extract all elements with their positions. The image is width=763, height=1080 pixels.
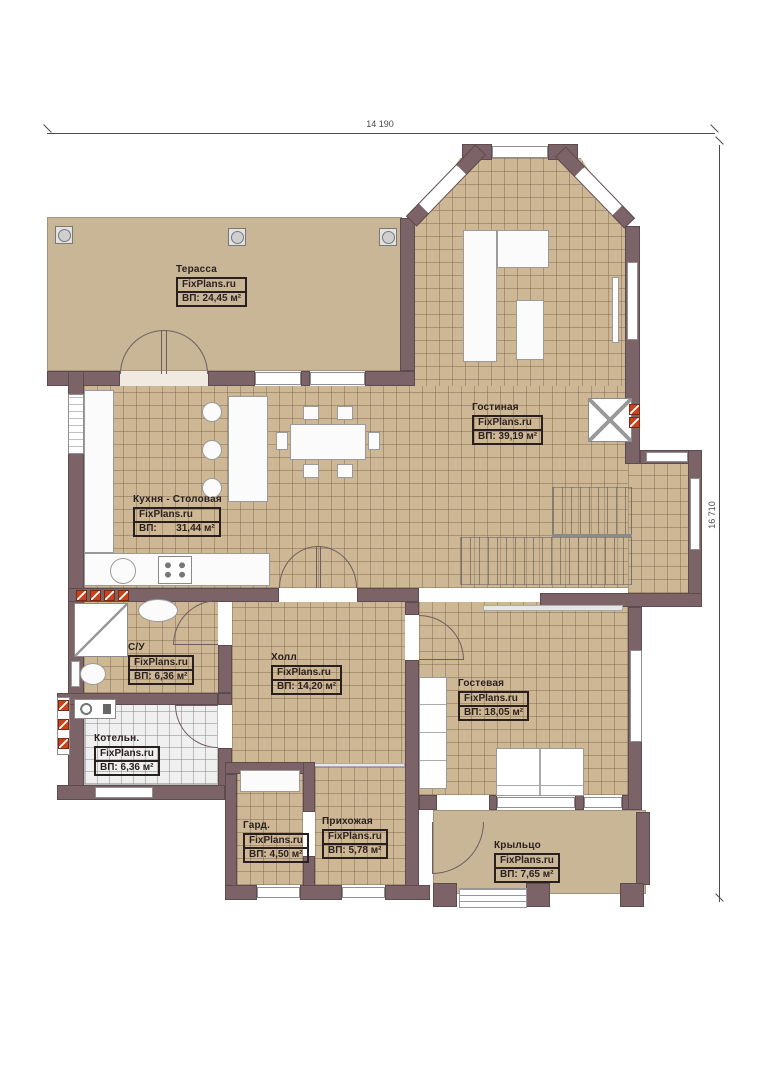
tv-console — [612, 277, 619, 343]
guest-bottom-wall-1 — [419, 795, 437, 810]
room-label-hall: Холл FixPlans.ru ВП: 14,20 м² — [271, 652, 342, 695]
sofa-back — [463, 230, 497, 362]
bay-top-window — [492, 146, 548, 158]
terrace-window-2 — [310, 372, 365, 385]
mid-wall-right — [357, 588, 419, 602]
room-label-wardrobe: Гард. FixPlans.ru ВП: 4,50 м² — [243, 820, 309, 863]
stairs-upper-flight — [552, 487, 632, 535]
boiler-door-leaf — [175, 705, 218, 706]
guest-bed — [496, 748, 584, 796]
kitchen-counter-left — [84, 390, 114, 553]
room-name-guest: Гостевая — [458, 678, 529, 690]
guest-top-beam — [483, 605, 623, 611]
radiator-marker-8 — [629, 404, 640, 415]
dim-right-line — [719, 145, 720, 902]
toilet-tank — [71, 661, 80, 687]
dining-table — [290, 424, 366, 460]
guest-bottom-window-1 — [497, 797, 575, 808]
brand-text: FixPlans.ru — [245, 835, 307, 849]
kitchen-sink — [110, 558, 136, 584]
chair-1 — [303, 406, 319, 420]
stepout-top-window — [646, 452, 688, 462]
stairs-lower-flight — [460, 537, 632, 585]
room-area-kitchen: ВП: 31,44 м² — [135, 523, 219, 535]
hall-guest-wall-b — [405, 660, 419, 895]
radiator-marker-9 — [629, 417, 640, 428]
wardrobe-left-wall — [225, 774, 237, 895]
room-box-kitchen: FixPlans.ru ВП: 31,44 м² — [133, 507, 221, 537]
terrace-column-3 — [379, 228, 397, 246]
dim-top-line — [47, 133, 715, 134]
bathroom-sink — [138, 599, 178, 622]
room-name-wardrobe: Гард. — [243, 820, 309, 832]
brand-text: FixPlans.ru — [496, 855, 558, 869]
brand-text: FixPlans.ru — [460, 693, 527, 707]
terrace-wall-pier — [301, 371, 310, 386]
hall-guest-wall-a — [405, 602, 419, 615]
guest-door-leaf — [419, 659, 464, 660]
boiler-bottom-window — [95, 787, 153, 798]
radiator-marker-4 — [118, 590, 129, 601]
room-area-hall: ВП: 14,20 м² — [273, 681, 340, 693]
radiator-marker-7 — [58, 738, 69, 749]
room-area-living: ВП: 39,19 м² — [474, 431, 541, 443]
dim-top-tick-left — [43, 124, 51, 132]
room-name-boiler: Котельн. — [94, 733, 160, 745]
brand-text: FixPlans.ru — [273, 667, 340, 681]
room-area-wardrobe: ВП: 4,50 м² — [245, 849, 307, 861]
bath-hall-wall-b — [218, 693, 232, 705]
guest-bottom-window-2 — [584, 797, 622, 808]
guest-wardrobe — [419, 677, 447, 789]
toilet-bowl — [80, 663, 106, 685]
brand-text: FixPlans.ru — [135, 509, 219, 523]
room-area-boiler: ВП: 6,36 м² — [96, 762, 158, 774]
floor-plan: 14 190 16 710 Терасса FixPlans.ru ВП: 24… — [0, 0, 763, 1080]
room-name-entry: Прихожая — [322, 816, 388, 828]
terrace-window-1 — [255, 372, 301, 385]
room-box-porch: FixPlans.ru ВП: 7,65 м² — [494, 853, 560, 883]
room-area-guest: ВП: 18,05 м² — [460, 707, 527, 719]
room-name-porch: Крыльцо — [494, 840, 560, 852]
porch-pillar-3 — [620, 883, 644, 907]
porch-pillar-1 — [433, 883, 457, 907]
bottom-wall-1 — [225, 885, 257, 900]
bottom-window-2 — [342, 887, 385, 898]
room-label-porch: Крыльцо FixPlans.ru ВП: 7,65 м² — [494, 840, 560, 883]
porch-pillar-2 — [526, 883, 550, 907]
stair-extension-floor — [628, 462, 690, 593]
living-right-window — [627, 262, 638, 340]
room-box-wardrobe: FixPlans.ru ВП: 4,50 м² — [243, 833, 309, 863]
stepout-right-window — [690, 478, 700, 550]
guest-bottom-wall-3 — [575, 795, 584, 810]
room-label-guest: Гостевая FixPlans.ru ВП: 18,05 м² — [458, 678, 529, 721]
radiator-marker-1 — [76, 590, 87, 601]
room-box-guest: FixPlans.ru ВП: 18,05 м² — [458, 691, 529, 721]
room-label-terrace: Терасса FixPlans.ru ВП: 24,45 м² — [176, 264, 247, 307]
radiator-marker-6 — [58, 719, 69, 730]
room-box-living: FixPlans.ru ВП: 39,19 м² — [472, 415, 543, 445]
dimension-width-label: 14 190 — [330, 119, 430, 129]
center-divider-a — [303, 762, 315, 812]
chair-5 — [276, 432, 288, 450]
room-name-living: Гостиная — [472, 402, 543, 414]
room-box-hall: FixPlans.ru ВП: 14,20 м² — [271, 665, 342, 695]
kitchen-hall-door-leaf-left — [316, 546, 317, 588]
brand-text: FixPlans.ru — [130, 657, 192, 671]
coffee-table — [516, 300, 544, 360]
stove — [158, 556, 192, 584]
room-box-entry: FixPlans.ru ВП: 5,78 м² — [322, 829, 388, 859]
room-label-boiler: Котельн. FixPlans.ru ВП: 6,36 м² — [94, 733, 160, 776]
terrace-door-leaf-right — [166, 330, 167, 374]
room-name-hall: Холл — [271, 652, 342, 664]
radiator-marker-3 — [104, 590, 115, 601]
room-box-bathroom: FixPlans.ru ВП: 6,36 м² — [128, 655, 194, 685]
porch-right-wall — [636, 812, 650, 885]
terrace-door-leaf-left — [161, 330, 162, 374]
room-label-entry: Прихожая FixPlans.ru ВП: 5,78 м² — [322, 816, 388, 859]
wardrobe-cabinet — [240, 770, 300, 792]
guest-bottom-wall-2 — [489, 795, 497, 810]
porch-door-leaf — [432, 822, 433, 874]
room-label-kitchen: Кухня - Столовая FixPlans.ru ВП: 31,44 м… — [133, 494, 222, 537]
bottom-wall-3 — [385, 885, 430, 900]
chimney-shaft — [588, 398, 632, 442]
chair-4 — [337, 464, 353, 478]
stairs-rail — [552, 534, 632, 537]
terrace-wall-seg3 — [365, 371, 415, 386]
kitchen-left-window — [68, 394, 84, 454]
room-name-kitchen: Кухня - Столовая — [133, 494, 222, 506]
terrace-wall-seg2 — [208, 371, 255, 386]
chair-6 — [368, 432, 380, 450]
brand-text: FixPlans.ru — [324, 831, 386, 845]
chair-2 — [337, 406, 353, 420]
brand-text: FixPlans.ru — [178, 279, 245, 293]
dimension-height-label: 16 710 — [707, 485, 717, 545]
terrace-column-1 — [55, 226, 73, 244]
room-area-entry: ВП: 5,78 м² — [324, 845, 386, 857]
room-area-terrace: ВП: 24,45 м² — [178, 293, 245, 305]
brand-text: FixPlans.ru — [474, 417, 541, 431]
chair-3 — [303, 464, 319, 478]
dim-top-tick-right — [710, 124, 718, 132]
guest-right-window — [630, 650, 642, 742]
bottom-window-1 — [257, 887, 300, 898]
shower — [74, 603, 128, 657]
kitchen-island — [228, 396, 268, 502]
bar-stool-2 — [202, 440, 222, 460]
terrace-column-2 — [228, 228, 246, 246]
room-label-living: Гостиная FixPlans.ru ВП: 39,19 м² — [472, 402, 543, 445]
room-area-bathroom: ВП: 6,36 м² — [130, 671, 192, 683]
sofa-seat — [497, 230, 549, 268]
brand-text: FixPlans.ru — [96, 748, 158, 762]
room-name-bathroom: С/У — [128, 642, 194, 654]
dim-right-tick-top — [715, 136, 723, 144]
bar-stool-1 — [202, 402, 222, 422]
entry-top-beam — [312, 763, 405, 767]
room-label-bathroom: С/У FixPlans.ru ВП: 6,36 м² — [128, 642, 194, 685]
room-name-terrace: Терасса — [176, 264, 247, 276]
bath-hall-wall-a — [218, 645, 232, 693]
room-box-terrace: FixPlans.ru ВП: 24,45 м² — [176, 277, 247, 307]
porch-steps — [459, 888, 527, 908]
kitchen-hall-door-leaf-right — [320, 546, 321, 588]
radiator-marker-5 — [58, 700, 69, 711]
bottom-wall-2 — [300, 885, 342, 900]
room-box-boiler: FixPlans.ru ВП: 6,36 м² — [94, 746, 160, 776]
living-left-wall — [400, 218, 415, 371]
radiator-marker-2 — [90, 590, 101, 601]
boiler-unit — [74, 699, 116, 719]
room-area-porch: ВП: 7,65 м² — [496, 869, 558, 881]
